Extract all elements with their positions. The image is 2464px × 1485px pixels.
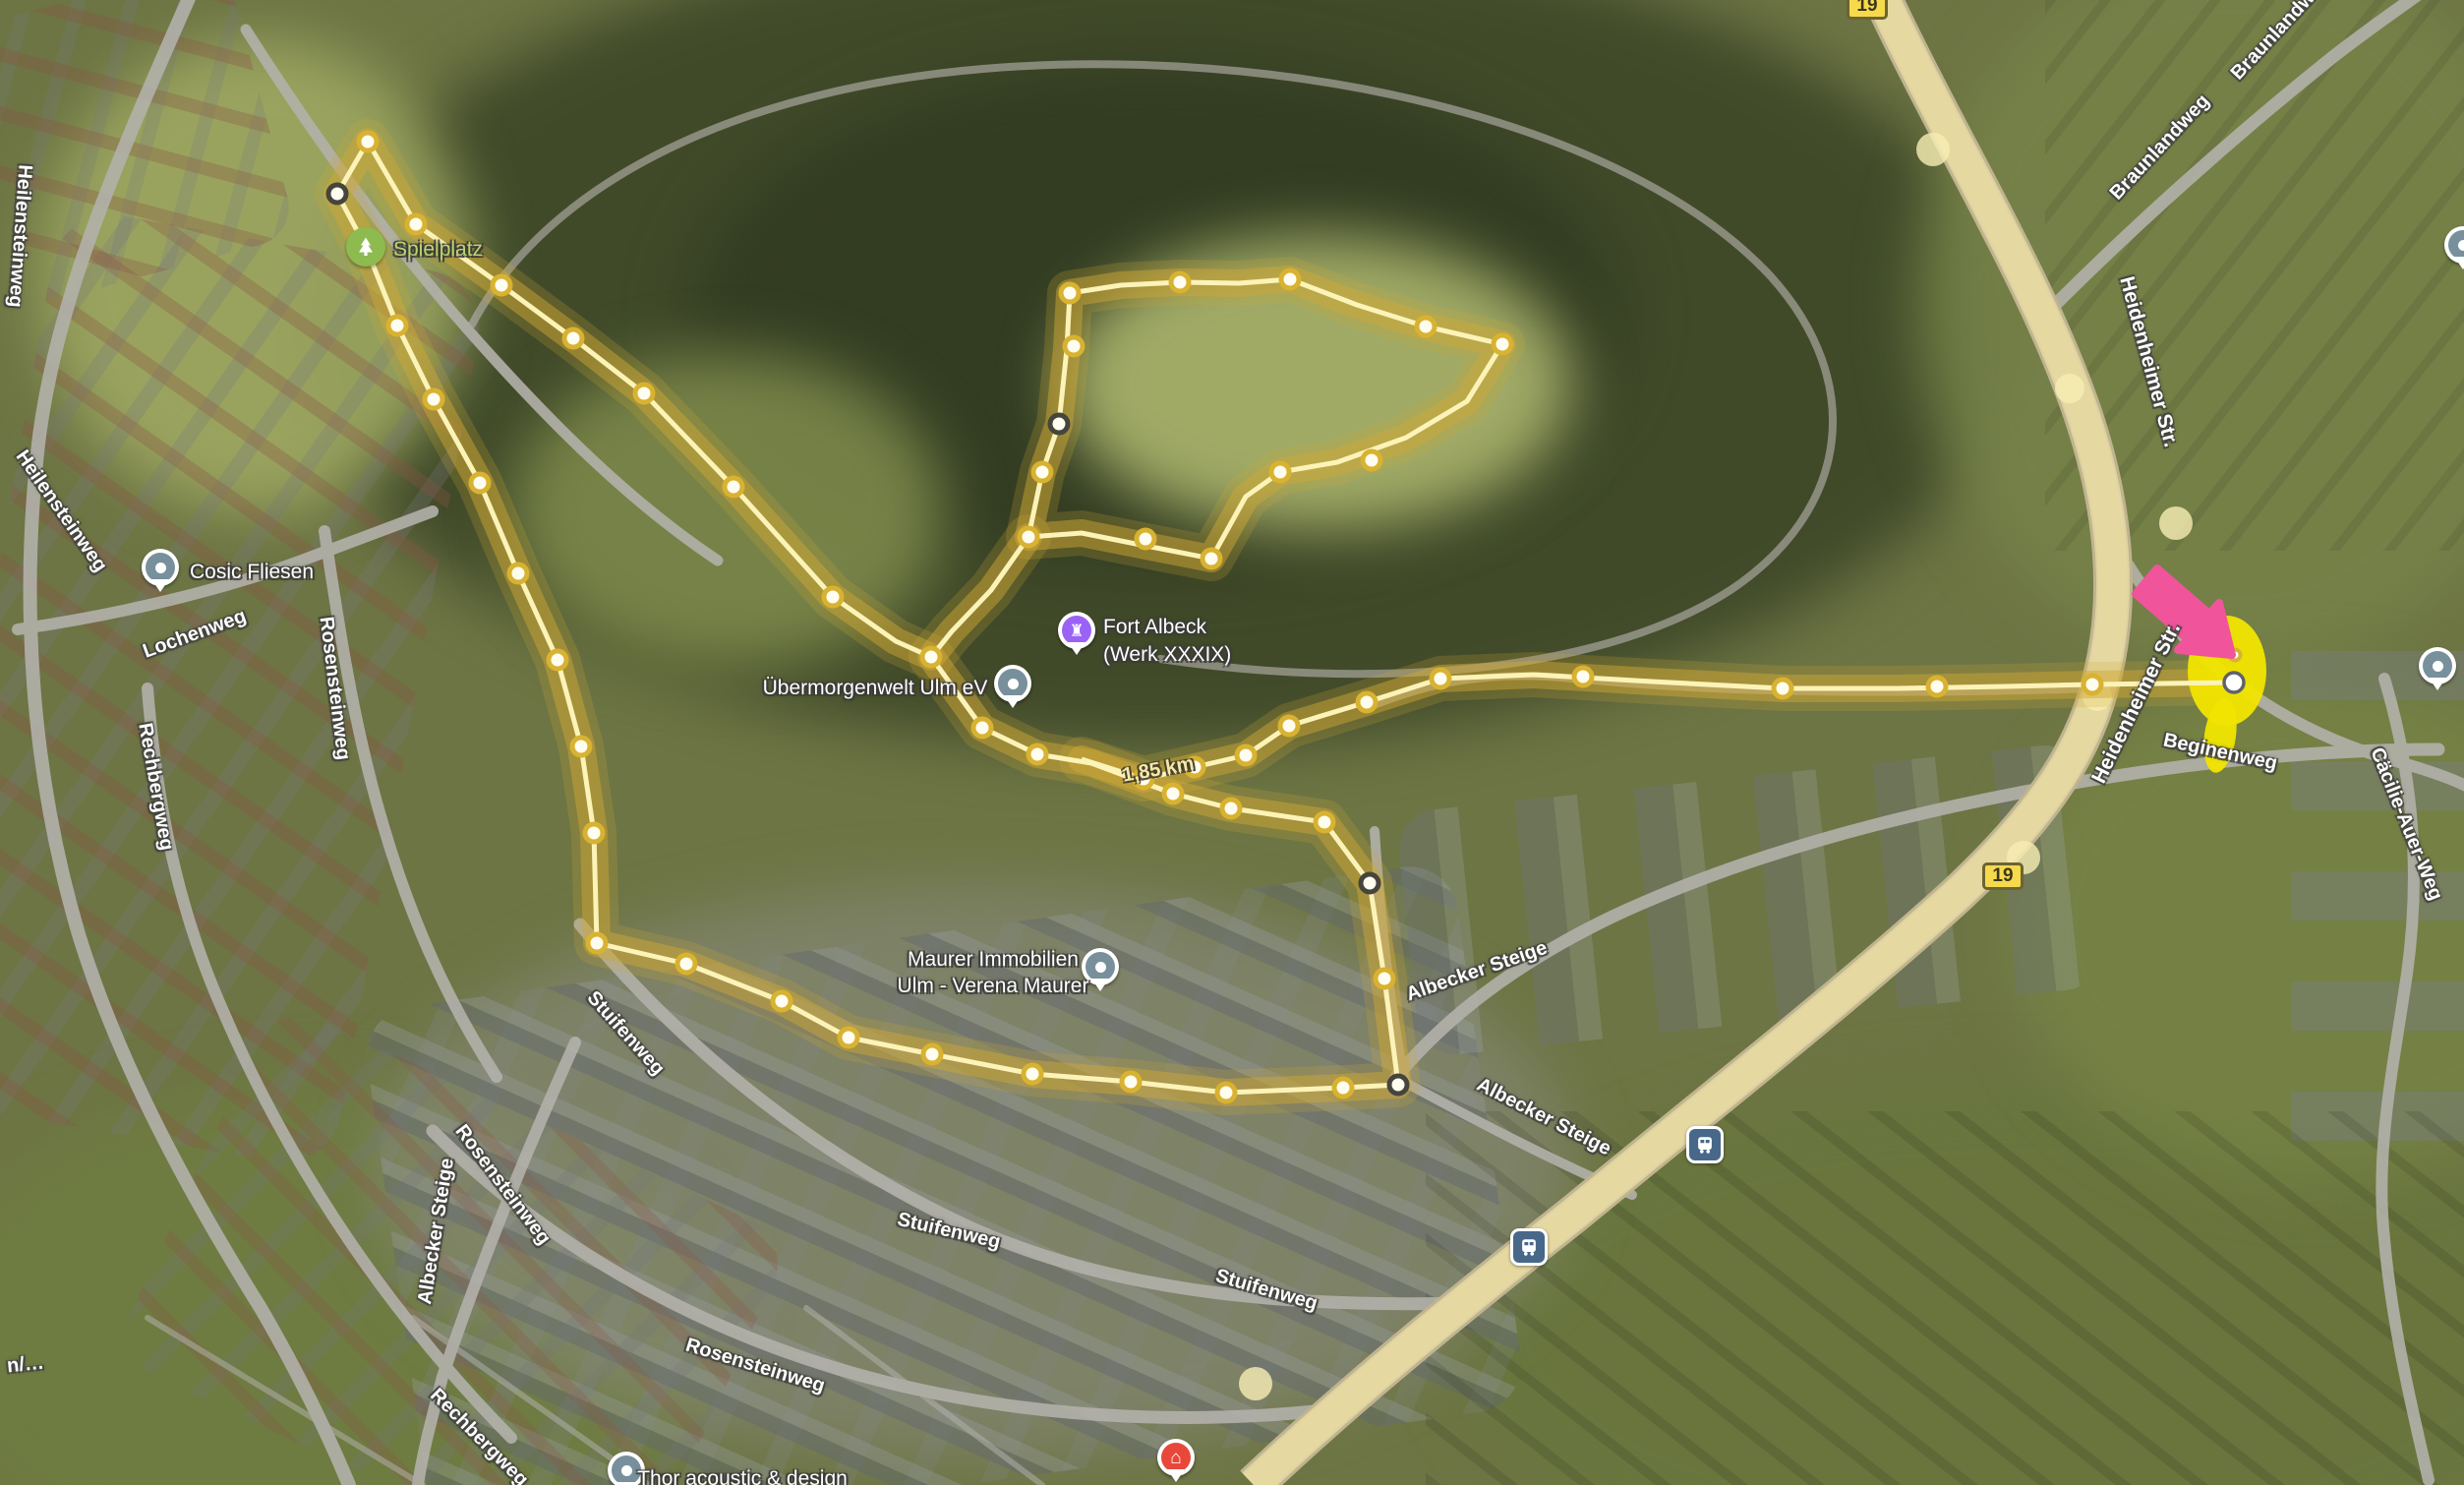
poi-label-line2: (Werk XXXIX)	[1103, 641, 1231, 669]
map-overlay	[0, 0, 2464, 1485]
poi-pin-right-edge[interactable]	[2419, 647, 2456, 684]
satellite-map[interactable]: Heilensteinweg Heilensteinweg Lochenweg …	[0, 0, 2464, 1485]
pin-icon	[146, 553, 175, 582]
poi-label-line2: Ulm - Verena Maurer	[898, 973, 1089, 999]
castle-icon: ♜	[1062, 616, 1091, 645]
poi-label-line1: Fort Albeck	[1103, 614, 1231, 641]
playground-poi-icon[interactable]	[346, 227, 385, 267]
route-shield-19: 19	[1982, 862, 2024, 890]
poi-label-line1: Maurer Immobilien	[898, 946, 1089, 973]
route-number: 19	[1856, 0, 1877, 17]
street-label: n/…	[6, 1352, 45, 1379]
pin-icon	[2448, 230, 2464, 260]
house-cross-icon: ⌂	[1161, 1443, 1191, 1472]
route-shield-19: 19	[1847, 0, 1888, 20]
poi-label-maurer[interactable]: Maurer Immobilien Ulm - Verena Maurer	[898, 946, 1089, 999]
poi-pin-uebermorgenwelt[interactable]	[994, 665, 1031, 702]
poi-pin-fort-albeck[interactable]: ♜	[1058, 612, 1095, 649]
bus-icon	[1694, 1134, 1716, 1156]
poi-label-fort-albeck[interactable]: Fort Albeck (Werk XXXIX)	[1103, 614, 1231, 669]
poi-pin-cosic-fliesen[interactable]	[142, 549, 179, 586]
poi-label-cosic-fliesen[interactable]: Cosic Fliesen	[190, 561, 314, 584]
pin-icon	[998, 669, 1027, 698]
poi-label-spielplatz[interactable]: Spielplatz	[393, 238, 483, 262]
poi-pin-health[interactable]: ⌂	[1157, 1439, 1195, 1476]
bus-stop-icon[interactable]	[1510, 1228, 1548, 1266]
bus-icon	[1518, 1236, 1540, 1258]
tree-icon	[354, 235, 378, 259]
poi-label-thor[interactable]: Thor acoustic & design	[637, 1467, 848, 1485]
pin-icon	[1085, 952, 1115, 981]
bus-stop-icon[interactable]	[1686, 1126, 1724, 1163]
pink-arrow-annotation	[2136, 568, 2232, 655]
route-number: 19	[1992, 865, 2013, 887]
pin-icon	[2423, 651, 2452, 681]
poi-label-uebermorgenwelt[interactable]: Übermorgenwelt Ulm eV	[763, 677, 988, 700]
